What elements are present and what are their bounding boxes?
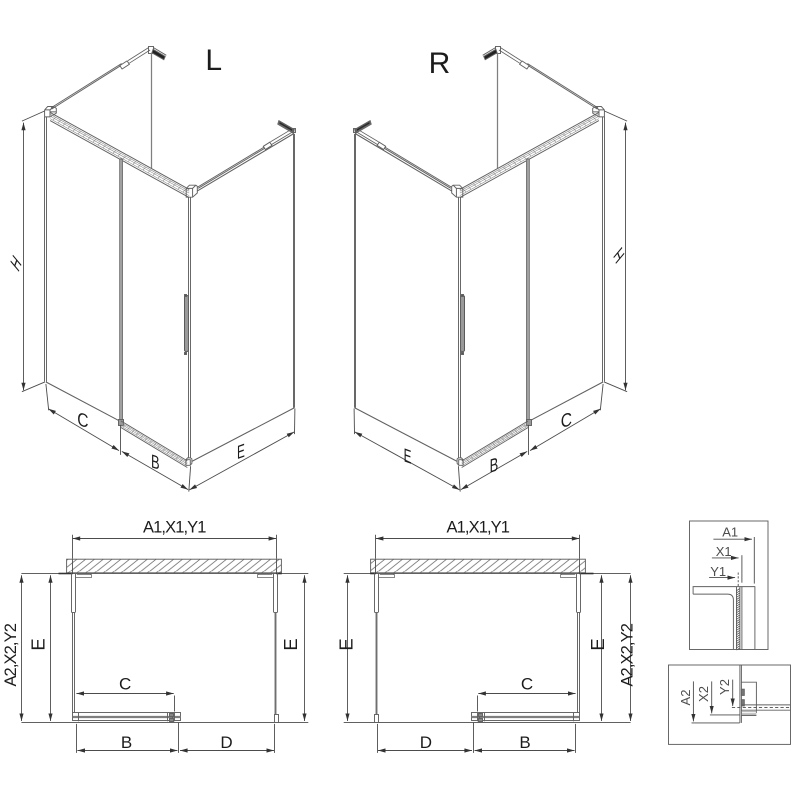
svg-text:E: E bbox=[280, 638, 301, 650]
svg-text:E: E bbox=[237, 440, 245, 464]
svg-text:Y1: Y1 bbox=[710, 564, 726, 579]
svg-text:D: D bbox=[420, 733, 432, 752]
svg-text:C: C bbox=[521, 674, 533, 693]
svg-text:A1,X1,Y1: A1,X1,Y1 bbox=[143, 518, 206, 536]
svg-text:B: B bbox=[121, 733, 132, 752]
svg-text:E: E bbox=[28, 638, 49, 650]
svg-text:L: L bbox=[205, 44, 222, 77]
svg-text:E: E bbox=[404, 445, 412, 469]
svg-text:C: C bbox=[561, 408, 573, 432]
svg-text:D: D bbox=[220, 733, 232, 752]
svg-text:X2: X2 bbox=[696, 686, 711, 702]
svg-text:Y2: Y2 bbox=[717, 679, 732, 695]
svg-text:B: B bbox=[519, 733, 530, 752]
svg-text:C: C bbox=[77, 408, 89, 432]
svg-text:H: H bbox=[8, 251, 25, 276]
svg-text:E: E bbox=[587, 638, 608, 650]
svg-text:R: R bbox=[429, 47, 451, 80]
svg-text:A1,X1,Y1: A1,X1,Y1 bbox=[447, 518, 510, 536]
svg-text:B: B bbox=[151, 451, 160, 474]
svg-text:X1: X1 bbox=[716, 544, 732, 559]
svg-text:E: E bbox=[336, 638, 357, 650]
svg-text:A2,X2,Y2: A2,X2,Y2 bbox=[2, 623, 20, 686]
svg-text:C: C bbox=[119, 674, 131, 693]
svg-text:A1: A1 bbox=[722, 524, 738, 539]
svg-text:A2,X2,Y2: A2,X2,Y2 bbox=[619, 623, 637, 686]
svg-text:B: B bbox=[490, 454, 499, 477]
svg-text:A2: A2 bbox=[678, 690, 693, 706]
